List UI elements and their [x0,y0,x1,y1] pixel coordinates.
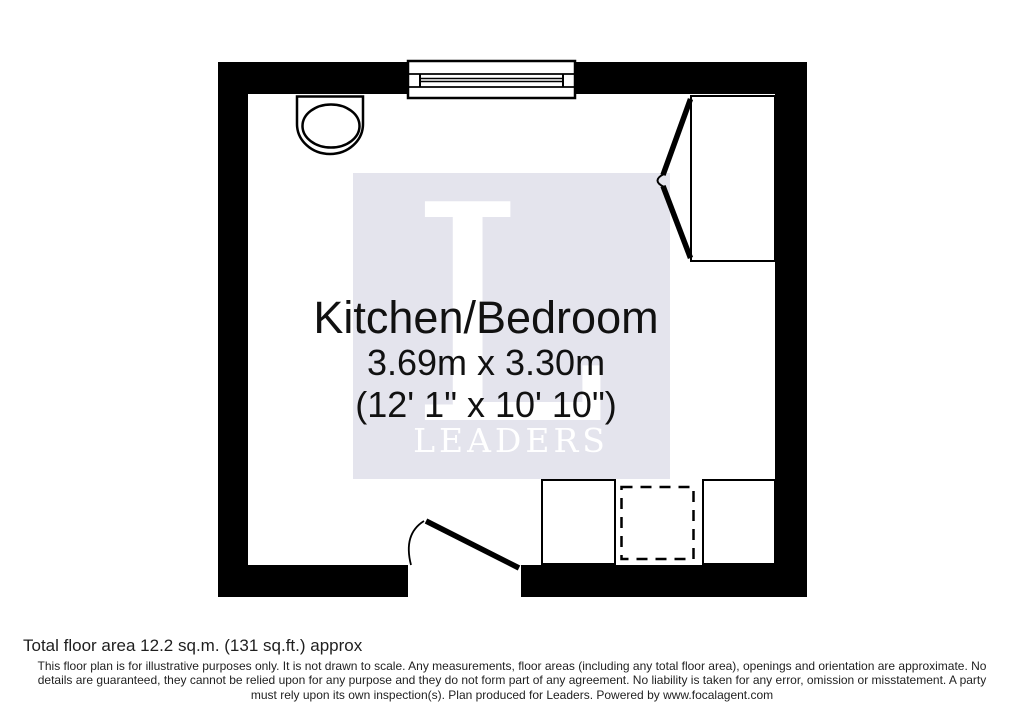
window [408,61,575,98]
sink [297,97,363,155]
watermark-brand: LEADERS [413,421,609,460]
room-dimensions-imperial: (12' 1" x 10' 10") [355,384,616,425]
bifold-door-leaf-top [663,99,691,175]
disclaimer-text: This floor plan is for illustrative purp… [0,659,1024,702]
wardrobe-cupboard [658,96,776,261]
room-name-label: Kitchen/Bedroom [313,292,658,343]
disclaimer-line-3: must rely upon its own inspection(s). Pl… [0,688,1024,702]
floorplan-canvas: L LEADERS [0,0,1024,717]
appliance-space-dashed [622,487,694,559]
entry-door-swing [409,521,519,568]
total-floor-area-text: Total floor area 12.2 sq.m. (131 sq.ft.)… [23,636,362,656]
disclaimer-line-2: details are guaranteed, they cannot be r… [0,673,1024,687]
disclaimer-line-1: This floor plan is for illustrative purp… [0,659,1024,673]
room-dimensions-metric: 3.69m x 3.30m [367,342,605,383]
floorplan-page: L LEADERS [0,0,1024,717]
kitchen-unit-left [542,480,615,564]
door-leaf [426,521,519,568]
door-swing-arc [409,521,424,565]
door-opening [408,561,521,601]
kitchen-unit-right [703,480,775,564]
